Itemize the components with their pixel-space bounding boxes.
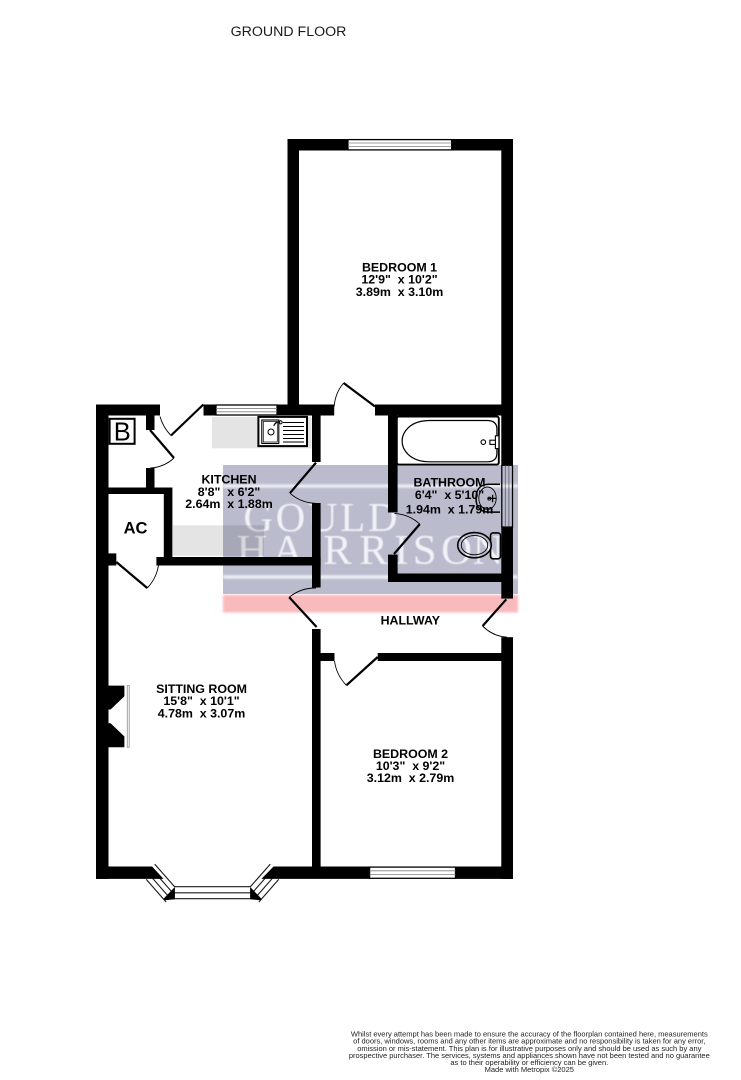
svg-text:AC: AC (124, 520, 148, 538)
svg-text:3.12m x 2.79m: 3.12m x 2.79m (367, 771, 455, 785)
svg-text:Made with Metropix ©2025: Made with Metropix ©2025 (485, 1065, 574, 1074)
svg-text:HARRISON: HARRISON (237, 527, 504, 574)
svg-text:B: B (114, 418, 131, 446)
svg-text:4.78m x 3.07m: 4.78m x 3.07m (158, 706, 246, 720)
svg-text:3.89m x 3.10m: 3.89m x 3.10m (356, 285, 444, 299)
svg-text:HALLWAY: HALLWAY (381, 614, 441, 628)
svg-text:GROUND FLOOR: GROUND FLOOR (231, 24, 347, 40)
